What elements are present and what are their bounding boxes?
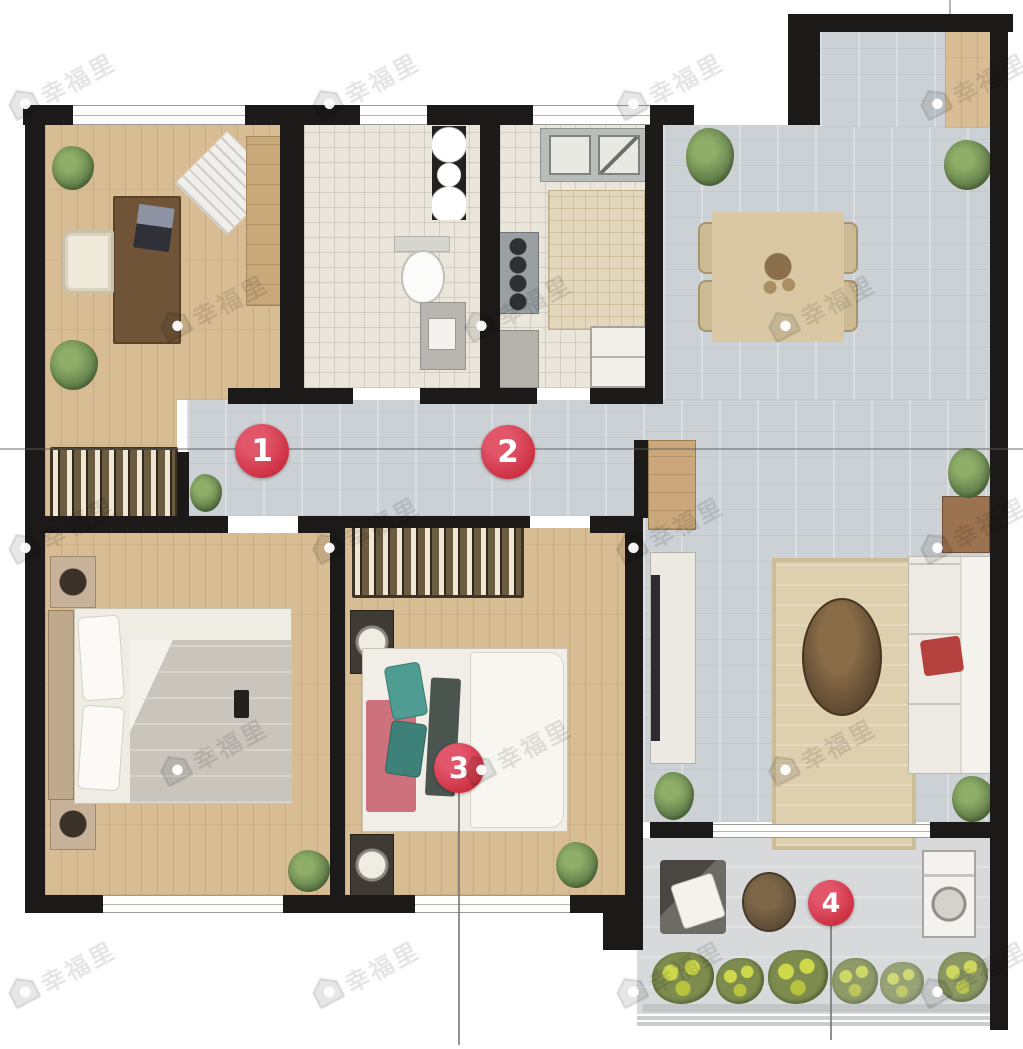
nightstand [350, 834, 394, 896]
house-badge-icon [306, 970, 349, 1016]
pillow [77, 615, 125, 702]
wall [420, 388, 482, 404]
bed-headboard [48, 610, 74, 800]
tv [651, 575, 660, 741]
watermark: 幸福里 [2, 930, 121, 1016]
wall [23, 105, 73, 125]
wall [280, 125, 304, 388]
dining-table [712, 212, 844, 342]
window [533, 105, 650, 125]
wall [480, 125, 500, 388]
entry-porch-wood [945, 32, 990, 128]
window [415, 895, 570, 913]
marker-1[interactable]: 1 [235, 424, 289, 478]
wall [330, 516, 345, 895]
house-badge-icon [2, 970, 45, 1016]
floor-plan-canvas: 1234 幸福里幸福里幸福里幸福里幸福里幸福里幸福里幸福里幸福里幸福里幸福里幸福… [0, 0, 1023, 1049]
desk-chair [62, 230, 114, 294]
marker-2[interactable]: 2 [481, 425, 535, 479]
wall [990, 14, 1008, 1030]
marker-4[interactable]: 4 [808, 880, 854, 926]
sofa-red-cushion [920, 635, 965, 676]
bathroom-sink [428, 318, 456, 350]
pillow [77, 705, 125, 792]
shoe-cabinet [648, 440, 696, 530]
marker-3-leader-line [458, 768, 460, 1045]
washing-machine [922, 850, 976, 938]
laptop [133, 204, 175, 253]
watermark-text: 幸福里 [33, 930, 121, 999]
pillow [384, 720, 427, 778]
watermark-text: 幸福里 [33, 42, 121, 111]
window [360, 105, 427, 125]
watermark-text: 幸福里 [337, 42, 425, 111]
wall [25, 516, 228, 533]
wall [25, 105, 45, 913]
planter-strip [643, 1004, 990, 1012]
balcony-railing [637, 1014, 990, 1028]
wall [625, 516, 643, 895]
watermark-text: 幸福里 [641, 42, 729, 111]
wall [930, 822, 992, 838]
wall [245, 105, 360, 125]
wall [228, 388, 303, 404]
balcony-door-threshold [713, 824, 930, 838]
wall [634, 440, 648, 518]
kitchen-sink-basin [549, 135, 591, 175]
toilet [401, 250, 445, 304]
balcony-table [742, 872, 796, 932]
wall [283, 895, 415, 913]
wall [650, 822, 713, 838]
wall [650, 105, 694, 125]
kitchen-sink-basin [598, 135, 640, 175]
bed-tray [234, 690, 249, 718]
wall [603, 895, 643, 950]
wall [177, 452, 189, 530]
wall [645, 125, 663, 400]
wall [480, 388, 537, 404]
wall [590, 388, 663, 404]
fridge [590, 326, 652, 388]
wall [303, 388, 353, 404]
wardrobe [352, 520, 524, 598]
stove-cooktop [497, 232, 539, 314]
nightstand [50, 798, 96, 850]
nightstand [50, 556, 96, 608]
wall [25, 895, 103, 913]
wall [345, 516, 530, 528]
wall [788, 14, 1013, 32]
watermark: 幸福里 [306, 930, 425, 1016]
kitchen-counter [548, 190, 645, 330]
dimension-line-vertical [949, 0, 951, 14]
wall [427, 105, 533, 125]
marker-3[interactable]: 3 [434, 743, 484, 793]
window [73, 105, 245, 125]
bed-duvet [470, 652, 564, 828]
bed-blanket [130, 640, 292, 803]
kitchen-cabinet [497, 330, 539, 388]
watermark-text: 幸福里 [337, 930, 425, 999]
window [103, 895, 283, 913]
coffee-table [802, 598, 882, 716]
hall-cabinet [942, 496, 990, 553]
bathroom-shelf [432, 126, 466, 220]
